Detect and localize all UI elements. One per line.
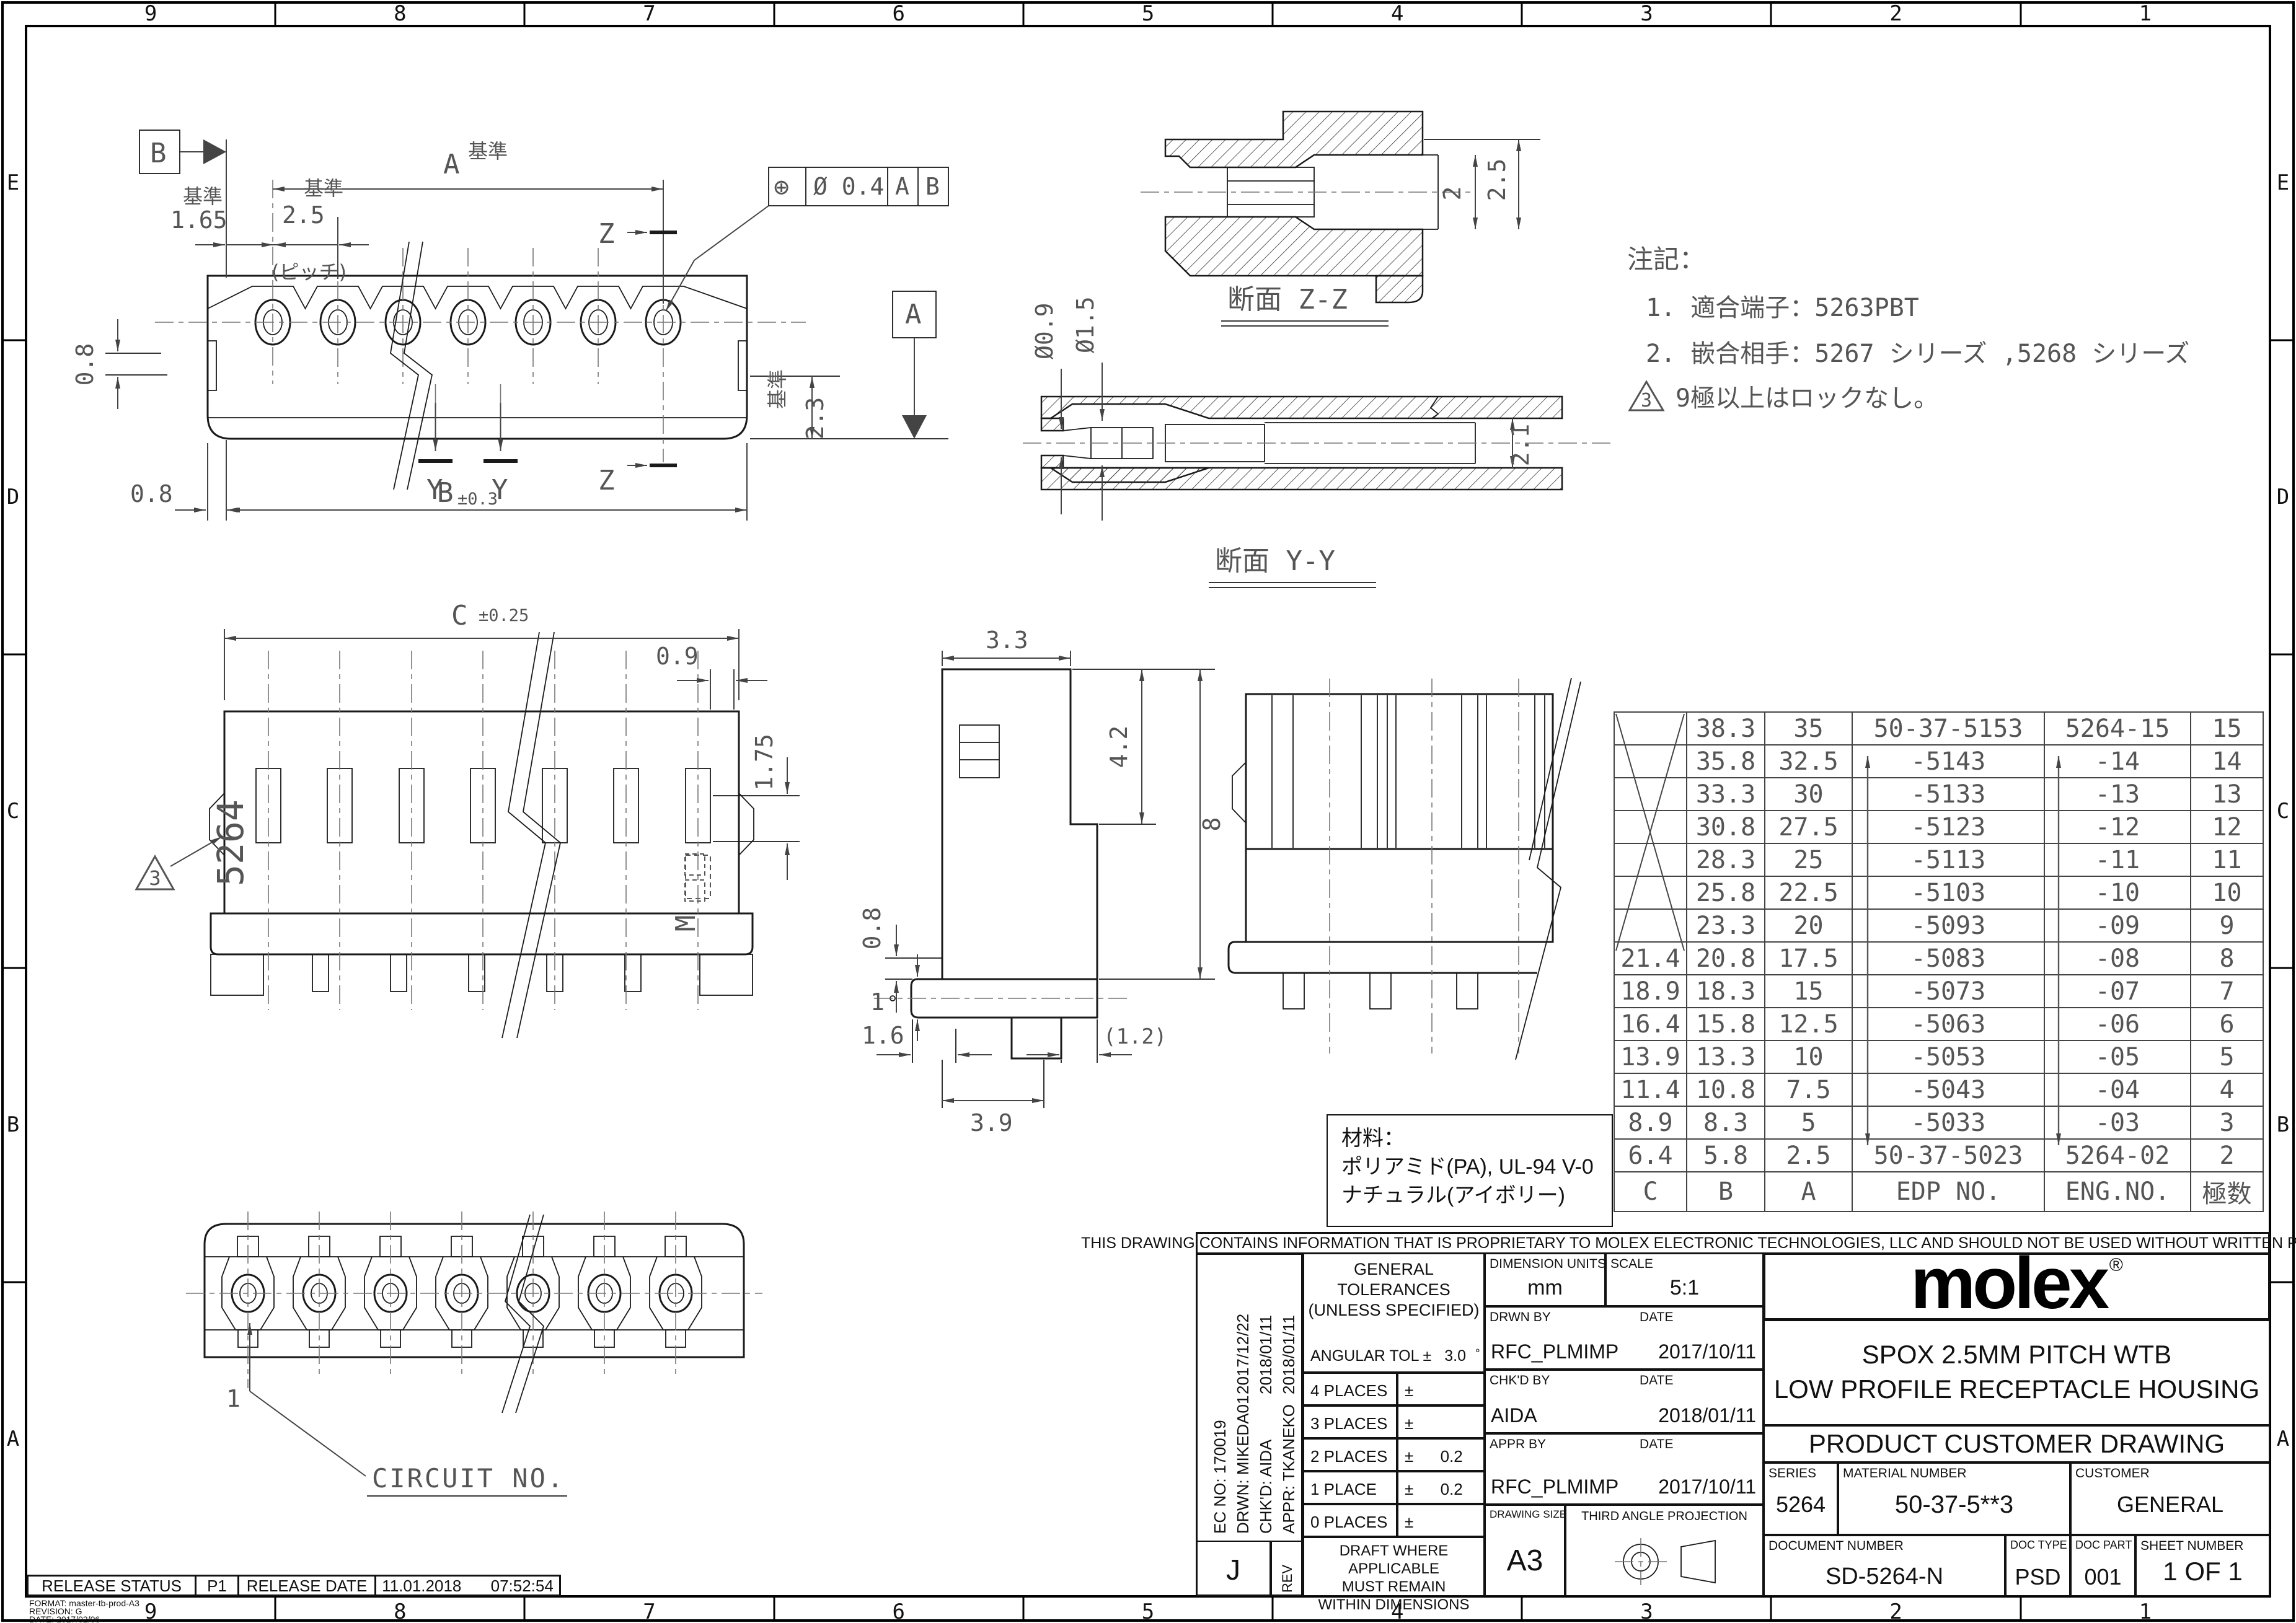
drawing-sheet: 998877665544332211EEDDCCBBAA bbox=[0, 0, 2296, 1623]
sheet-number-value: 1 OF 1 bbox=[2137, 1557, 2269, 1586]
title-cell: SPOX 2.5MM PITCH WTB LOW PROFILE RECEPTA… bbox=[1764, 1320, 2270, 1425]
drawing-title-line2: LOW PROFILE RECEPTACLE HOUSING bbox=[1765, 1372, 2269, 1407]
rev-value-cell: J bbox=[1196, 1541, 1271, 1596]
zone-row-A-left: A bbox=[0, 1282, 26, 1596]
parts-row-4-b: 10.8 bbox=[1687, 1073, 1765, 1106]
kijun-165: 基準 bbox=[183, 185, 223, 208]
chkd-by-label: CHK'D BY bbox=[1490, 1373, 1550, 1388]
rear-view bbox=[1203, 669, 1612, 1066]
projection-cell: THIRD ANGLE PROJECTION bbox=[1565, 1505, 1764, 1596]
drwn-by-label: DRWN BY bbox=[1490, 1310, 1551, 1325]
rev-label: REV bbox=[1279, 1547, 1296, 1593]
dim-c-tol: ±0.25 bbox=[479, 606, 529, 625]
dim-12: (1.2) bbox=[1103, 1024, 1167, 1049]
release-time-value: 07:52:54 bbox=[491, 1577, 554, 1595]
chkd-date: 2018/01/11 bbox=[1658, 1404, 1756, 1427]
parts-row-13-eng: -13 bbox=[2044, 778, 2191, 811]
document-number-cell: DOCUMENT NUMBER SD-5264-N bbox=[1764, 1535, 2005, 1596]
parts-row-7-poles: 7 bbox=[2191, 975, 2263, 1008]
zone-col-8-bottom: 8 bbox=[275, 1599, 524, 1623]
parts-row-11-poles: 11 bbox=[2191, 843, 2263, 876]
doc-type-label: DOC TYPE bbox=[2010, 1539, 2067, 1552]
parts-row-14-a: 32.5 bbox=[1765, 745, 1852, 778]
series-cell: SERIES 5264 bbox=[1764, 1462, 1838, 1535]
tol-row-1-label: 3 PLACES bbox=[1303, 1405, 1397, 1438]
dim-b-tol: ±0.3 bbox=[457, 490, 498, 509]
drwn-date: 2017/10/11 bbox=[1658, 1340, 1756, 1363]
date-line: DATE: 2017/02/06 bbox=[29, 1616, 139, 1623]
kijun-right: 基準 bbox=[766, 369, 789, 409]
parts-row-15-eng: 5264-15 bbox=[2044, 712, 2191, 745]
appr-date-label: DATE bbox=[1640, 1437, 1673, 1452]
parts-row-10-eng: -10 bbox=[2044, 876, 2191, 909]
zone-row-D-left: D bbox=[0, 340, 26, 654]
parts-row-10-poles: 10 bbox=[2191, 876, 2263, 909]
parts-row-15-b: 38.3 bbox=[1687, 712, 1765, 745]
parts-row-8-eng: -08 bbox=[2044, 942, 2191, 975]
parts-header-B: B bbox=[1687, 1172, 1765, 1212]
tol-row-4-value: ± bbox=[1397, 1504, 1485, 1537]
angular-tol-label: ANGULAR TOL ± bbox=[1310, 1347, 1431, 1365]
tolerances-header: GENERAL TOLERANCES (UNLESS SPECIFIED) AN… bbox=[1303, 1253, 1485, 1373]
zone-col-7-bottom: 7 bbox=[524, 1599, 774, 1623]
draft-line1: DRAFT WHERE APPLICABLE bbox=[1304, 1542, 1483, 1578]
parts-row-3-edp: -5033 bbox=[1852, 1106, 2044, 1139]
datum-a-flag: A bbox=[905, 299, 922, 330]
projection-label: THIRD ANGLE PROJECTION bbox=[1566, 1506, 1762, 1524]
yy-dim-hole: Ø0.9 bbox=[1031, 302, 1058, 359]
zz-dim-25: 2.5 bbox=[1483, 159, 1511, 201]
parts-row-7-c: 18.9 bbox=[1614, 975, 1687, 1008]
doc-band: PRODUCT CUSTOMER DRAWING bbox=[1764, 1425, 2270, 1462]
parts-row-2-a: 2.5 bbox=[1765, 1139, 1852, 1172]
dim-23: 2.3 bbox=[801, 397, 829, 440]
tol-row-2-label: 2 PLACES bbox=[1303, 1438, 1397, 1471]
units-cell: DIMENSION UNITS mm bbox=[1485, 1253, 1605, 1306]
scale-cell: SCALE 5:1 bbox=[1605, 1253, 1764, 1306]
parts-row-13-a: 30 bbox=[1765, 778, 1852, 811]
parts-header-ENG.NO.: ENG.NO. bbox=[2044, 1172, 2191, 1212]
parts-header-EDP NO.: EDP NO. bbox=[1852, 1172, 2044, 1212]
parts-row-9-b: 23.3 bbox=[1687, 909, 1765, 942]
circuit-no-label: CIRCUIT NO. bbox=[372, 1463, 565, 1493]
release-status-label: RELEASE STATUS bbox=[29, 1577, 196, 1594]
zone-col-7-top: 7 bbox=[524, 1, 774, 26]
document-number-value: SD-5264-N bbox=[1765, 1564, 2004, 1590]
molex-reg-mark: ® bbox=[2109, 1255, 2123, 1275]
parts-header-C: C bbox=[1614, 1172, 1687, 1212]
scale-label: SCALE bbox=[1610, 1257, 1653, 1272]
doc-part-value: 001 bbox=[2072, 1564, 2134, 1590]
tol-row-4-label: 0 PLACES bbox=[1303, 1504, 1397, 1537]
ec-appr: APPR: TKANEKO bbox=[1279, 1351, 1299, 1534]
series-value: 5264 bbox=[1765, 1492, 1837, 1518]
parts-row-6-poles: 6 bbox=[2191, 1008, 2263, 1040]
tol-title3: (UNLESS SPECIFIED) bbox=[1304, 1300, 1483, 1321]
parts-row-13-edp: -5133 bbox=[1852, 778, 2044, 811]
parts-row-14-edp: -5143 bbox=[1852, 745, 2044, 778]
parts-row-9-a: 20 bbox=[1765, 909, 1852, 942]
angular-tol-unit: ° bbox=[1475, 1347, 1480, 1360]
zone-col-8-top: 8 bbox=[275, 1, 524, 26]
appr-by-label: APPR BY bbox=[1490, 1437, 1546, 1452]
appr-by: RFC_PLMIMP bbox=[1491, 1476, 1618, 1498]
parts-row-3-a: 5 bbox=[1765, 1106, 1852, 1139]
parts-row-2-eng: 5264-02 bbox=[2044, 1139, 2191, 1172]
front-flag-3: 3 bbox=[149, 866, 161, 890]
ec-drwn: DRWN: MIKEDA01 bbox=[1234, 1351, 1253, 1534]
parts-row-5-edp: -5053 bbox=[1852, 1040, 2044, 1073]
doc-part-label: DOC PART bbox=[2075, 1539, 2132, 1552]
zone-col-1-bottom: 1 bbox=[2021, 1599, 2270, 1623]
parts-row-15-edp: 50-37-5153 bbox=[1852, 712, 2044, 745]
parts-row-12-edp: -5123 bbox=[1852, 811, 2044, 843]
svg-text:3: 3 bbox=[1641, 390, 1652, 411]
dim-step-lower: 0.8 bbox=[130, 480, 173, 508]
dim-42: 4.2 bbox=[1105, 726, 1133, 768]
parts-row-10-b: 25.8 bbox=[1687, 876, 1765, 909]
tol-title1: GENERAL bbox=[1304, 1259, 1483, 1280]
dim-pitch: 2.5 bbox=[282, 201, 325, 229]
dim-08: 0.8 bbox=[859, 907, 886, 950]
side-view: 3.3 4.2 8 0.8 1 1.6 (1.2) 3.9 bbox=[855, 632, 1252, 1146]
parts-row-12-poles: 12 bbox=[2191, 811, 2263, 843]
parts-row-2-poles: 2 bbox=[2191, 1139, 2263, 1172]
fcf-position-symbol: ⊕ bbox=[774, 172, 789, 202]
drawing-title-line1: SPOX 2.5MM PITCH WTB bbox=[1765, 1337, 2269, 1372]
zone-col-2-top: 2 bbox=[1772, 1, 2021, 26]
parts-row-3-poles: 3 bbox=[2191, 1106, 2263, 1139]
parts-row-6-edp: -5063 bbox=[1852, 1008, 2044, 1040]
rev-label-cell: REV bbox=[1271, 1541, 1303, 1596]
ec-no: EC NO: 170019 bbox=[1211, 1351, 1230, 1534]
appr-date: 2017/10/11 bbox=[1658, 1476, 1756, 1498]
datum-a-triangle bbox=[902, 415, 927, 439]
draft-line2: MUST REMAIN bbox=[1304, 1578, 1483, 1596]
parts-row-6-c: 16.4 bbox=[1614, 1008, 1687, 1040]
drwn-by: RFC_PLMIMP bbox=[1491, 1340, 1618, 1363]
parts-row-10-c bbox=[1614, 876, 1687, 909]
front-view: 5264 M C ±0.25 0.9 1.75 3 bbox=[112, 576, 886, 1072]
fcf-datum1: A bbox=[895, 173, 909, 200]
parts-row-3-c: 8.9 bbox=[1614, 1106, 1687, 1139]
zone-row-D-right: D bbox=[2270, 340, 2296, 654]
dim-a-kijun: 基準 bbox=[468, 139, 508, 163]
section-yy: Ø0.9 Ø1.5 2.1 断面 Y-Y bbox=[1004, 335, 1649, 607]
parts-row-8-b: 20.8 bbox=[1687, 942, 1765, 975]
parts-row-9-eng: -09 bbox=[2044, 909, 2191, 942]
tol-row-0-value: ± bbox=[1397, 1373, 1485, 1405]
parts-header-A: A bbox=[1765, 1172, 1852, 1212]
release-strip: RELEASE STATUS P1 RELEASE DATE 11.01.201… bbox=[27, 1575, 561, 1596]
series-label: SERIES bbox=[1768, 1466, 1816, 1481]
parts-row-14-poles: 14 bbox=[2191, 745, 2263, 778]
tol-row-3-label: 1 PLACE bbox=[1303, 1471, 1397, 1504]
chkd-cell: CHK'D BY DATE AIDA 2018/01/11 bbox=[1485, 1370, 1764, 1433]
ec-chkd: CHK'D: AIDA bbox=[1256, 1351, 1276, 1534]
dim-165: 1.65 bbox=[170, 206, 227, 234]
tol-row-2-value: ± 0.2 bbox=[1397, 1438, 1485, 1471]
dim-16: 1.6 bbox=[862, 1022, 904, 1049]
dim-c: C bbox=[451, 600, 468, 631]
parts-row-5-a: 10 bbox=[1765, 1040, 1852, 1073]
sheet-number-cell: SHEET NUMBER 1 OF 1 bbox=[2135, 1535, 2270, 1596]
drwn-cell: DRWN BY DATE RFC_PLMIMP 2017/10/11 bbox=[1485, 1306, 1764, 1370]
chkd-date-label: DATE bbox=[1640, 1373, 1673, 1388]
bottom-view: 1 CIRCUIT NO. bbox=[167, 1208, 787, 1543]
parts-row-6-b: 15.8 bbox=[1687, 1008, 1765, 1040]
doc-type-value: PSD bbox=[2007, 1564, 2069, 1590]
zone-row-E-right: E bbox=[2270, 26, 2296, 340]
dim-step-upper: 0.8 bbox=[71, 343, 99, 386]
notes-block: 注記： 1. 適合端子：5263PBT 2. 嵌合相手：5267 シリーズ ,5… bbox=[1627, 239, 2189, 414]
pin1-label: 1 bbox=[226, 1385, 241, 1412]
pitch-note: (ピッチ) bbox=[272, 260, 347, 284]
units-value: mm bbox=[1486, 1276, 1604, 1300]
drwn-date-label: DATE bbox=[1640, 1310, 1673, 1325]
parts-row-2-b: 5.8 bbox=[1687, 1139, 1765, 1172]
zz-dim-2: 2 bbox=[1439, 187, 1466, 201]
parts-row-7-a: 15 bbox=[1765, 975, 1852, 1008]
release-date-value: 11.01.2018 bbox=[382, 1577, 461, 1595]
draft-line3: WITHIN DIMENSIONS bbox=[1304, 1596, 1483, 1614]
section-z-bottom: Z bbox=[598, 465, 615, 496]
parts-row-15-a: 35 bbox=[1765, 712, 1852, 745]
parts-row-8-a: 17.5 bbox=[1765, 942, 1852, 975]
zone-col-6-top: 6 bbox=[774, 1, 1023, 26]
parts-row-7-b: 18.3 bbox=[1687, 975, 1765, 1008]
date-marking: M bbox=[670, 915, 702, 932]
parts-row-7-eng: -07 bbox=[2044, 975, 2191, 1008]
rev-value: J bbox=[1197, 1542, 1269, 1586]
parts-row-12-c bbox=[1614, 811, 1687, 843]
parts-row-12-eng: -12 bbox=[2044, 811, 2191, 843]
zone-col-4-top: 4 bbox=[1273, 1, 1522, 26]
parts-row-2-edp: 50-37-5023 bbox=[1852, 1139, 2044, 1172]
material-line2: ナチュラル(アイボリー) bbox=[1341, 1181, 1612, 1210]
note-2: 2. 嵌合相手：5267 シリーズ ,5268 シリーズ bbox=[1646, 333, 2189, 369]
parts-row-11-edp: -5113 bbox=[1852, 843, 2044, 876]
dim-a: A bbox=[443, 149, 460, 180]
material-box: 材料： ポリアミド(PA), UL-94 V-0 ナチュラル(アイボリー) bbox=[1327, 1114, 1613, 1227]
draft-note: DRAFT WHERE APPLICABLE MUST REMAIN WITHI… bbox=[1303, 1537, 1485, 1596]
drawing-size-label: DRAWING SIZE bbox=[1490, 1508, 1566, 1521]
parts-row-10-edp: -5103 bbox=[1852, 876, 2044, 909]
zone-col-2-bottom: 2 bbox=[1772, 1599, 2021, 1623]
note-1: 1. 適合端子：5263PBT bbox=[1646, 288, 2189, 323]
datum-b-triangle bbox=[203, 139, 226, 164]
parts-row-13-c bbox=[1614, 778, 1687, 811]
material-title: 材料： bbox=[1341, 1124, 1612, 1153]
doc-part-cell: DOC PART 001 bbox=[2070, 1535, 2135, 1596]
dim-33: 3.3 bbox=[986, 627, 1028, 654]
dim-1: 1 bbox=[870, 988, 885, 1016]
parts-row-3-b: 8.3 bbox=[1687, 1106, 1765, 1139]
parts-header-極数: 極数 bbox=[2191, 1172, 2263, 1212]
yy-dim-bore: Ø1.5 bbox=[1072, 296, 1099, 353]
parts-row-15-poles: 15 bbox=[2191, 712, 2263, 745]
doc-type-cell: DOC TYPE PSD bbox=[2005, 1535, 2070, 1596]
parts-row-8-edp: -5083 bbox=[1852, 942, 2044, 975]
parts-row-5-b: 13.3 bbox=[1687, 1040, 1765, 1073]
section-z-top: Z bbox=[598, 218, 615, 250]
zz-title: 断面 Z-Z bbox=[1227, 284, 1348, 315]
third-angle-projection-icon bbox=[1610, 1536, 1728, 1588]
molded-text: 5264 bbox=[210, 799, 252, 886]
parts-row-4-a: 7.5 bbox=[1765, 1073, 1852, 1106]
parts-row-13-b: 33.3 bbox=[1687, 778, 1765, 811]
parts-row-4-eng: -04 bbox=[2044, 1073, 2191, 1106]
angular-tol-value: 3.0 bbox=[1444, 1347, 1466, 1365]
parts-row-9-c bbox=[1614, 909, 1687, 942]
document-number-label: DOCUMENT NUMBER bbox=[1768, 1539, 1904, 1554]
parts-row-5-eng: -05 bbox=[2044, 1040, 2191, 1073]
logo-cell: molex ® bbox=[1764, 1253, 2270, 1320]
parts-row-2-c: 6.4 bbox=[1614, 1139, 1687, 1172]
zone-col-6-bottom: 6 bbox=[774, 1599, 1023, 1623]
format-note: FORMAT: master-tb-prod-A3 REVISION: G DA… bbox=[29, 1599, 139, 1623]
note-3-text: 9極以上はロックなし。 bbox=[1676, 378, 1938, 414]
yy-dim-height: 2.1 bbox=[1507, 424, 1534, 467]
parts-table: 38.33550-37-51535264-151535.832.5-5143-1… bbox=[1614, 711, 2264, 1212]
yy-title: 断面 Y-Y bbox=[1215, 545, 1335, 577]
parts-row-8-poles: 8 bbox=[2191, 942, 2263, 975]
parts-row-8-c: 21.4 bbox=[1614, 942, 1687, 975]
customer-cell: CUSTOMER GENERAL bbox=[2070, 1462, 2270, 1535]
dim-09: 0.9 bbox=[656, 643, 699, 670]
zone-col-3-top: 3 bbox=[1522, 1, 1771, 26]
scale-value: 5:1 bbox=[1607, 1276, 1762, 1300]
parts-row-12-a: 27.5 bbox=[1765, 811, 1852, 843]
drawing-size-value: A3 bbox=[1486, 1544, 1564, 1578]
chkd-by: AIDA bbox=[1491, 1404, 1537, 1427]
parts-row-11-c bbox=[1614, 843, 1687, 876]
zone-row-C-right: C bbox=[2270, 654, 2296, 969]
sheet-number-label: SHEET NUMBER bbox=[2140, 1539, 2243, 1554]
parts-row-15-c bbox=[1614, 712, 1687, 745]
parts-row-4-c: 11.4 bbox=[1614, 1073, 1687, 1106]
dim-175: 1.75 bbox=[751, 734, 778, 791]
tol-row-1-value: ± bbox=[1397, 1405, 1485, 1438]
fcf-tolerance: Ø 0.4 bbox=[813, 173, 884, 200]
zone-col-3-bottom: 3 bbox=[1522, 1599, 1771, 1623]
dim-39: 3.9 bbox=[970, 1109, 1013, 1137]
zone-col-5-bottom: 5 bbox=[1023, 1599, 1273, 1623]
parts-row-11-a: 25 bbox=[1765, 843, 1852, 876]
tol-row-3-value: ± 0.2 bbox=[1397, 1471, 1485, 1504]
customer-label: CUSTOMER bbox=[2075, 1466, 2150, 1481]
customer-value: GENERAL bbox=[2072, 1492, 2269, 1518]
parts-row-13-poles: 13 bbox=[2191, 778, 2263, 811]
parts-row-6-eng: -06 bbox=[2044, 1008, 2191, 1040]
parts-row-14-eng: -14 bbox=[2044, 745, 2191, 778]
parts-row-5-c: 13.9 bbox=[1614, 1040, 1687, 1073]
kijun-25: 基準 bbox=[304, 177, 343, 200]
tol-row-0-label: 4 PLACES bbox=[1303, 1373, 1397, 1405]
note-3: 3 9極以上はロックなし。 bbox=[1627, 378, 2189, 414]
parts-row-7-edp: -5073 bbox=[1852, 975, 2044, 1008]
material-number-value: 50-37-5**3 bbox=[1839, 1491, 2069, 1519]
zone-col-5-top: 5 bbox=[1023, 1, 1273, 26]
drawing-size-cell: DRAWING SIZE A3 bbox=[1485, 1505, 1565, 1596]
parts-row-5-poles: 5 bbox=[2191, 1040, 2263, 1073]
parts-row-4-edp: -5043 bbox=[1852, 1073, 2044, 1106]
parts-row-11-eng: -11 bbox=[2044, 843, 2191, 876]
material-number-label: MATERIAL NUMBER bbox=[1843, 1466, 1967, 1481]
parts-row-6-a: 12.5 bbox=[1765, 1008, 1852, 1040]
molex-logo: molex bbox=[1910, 1243, 2106, 1324]
parts-row-11-b: 28.3 bbox=[1687, 843, 1765, 876]
parts-row-14-c bbox=[1614, 745, 1687, 778]
parts-row-9-edp: -5093 bbox=[1852, 909, 2044, 942]
notes-title: 注記： bbox=[1627, 239, 2189, 276]
zone-row-A-right: A bbox=[2270, 1282, 2296, 1596]
appr-cell: APPR BY DATE RFC_PLMIMP 2017/10/11 bbox=[1485, 1433, 1764, 1505]
zone-col-9-top: 9 bbox=[26, 1, 275, 26]
fcf-datum2: B bbox=[925, 173, 940, 200]
doc-band-text: PRODUCT CUSTOMER DRAWING bbox=[1765, 1427, 2269, 1459]
note-3-flag-triangle: 3 bbox=[1627, 379, 1666, 413]
release-date-label: RELEASE DATE bbox=[239, 1577, 376, 1594]
datum-b-flag: B bbox=[150, 138, 167, 169]
zone-row-E-left: E bbox=[0, 26, 26, 340]
parts-row-9-poles: 9 bbox=[2191, 909, 2263, 942]
zone-row-C-left: C bbox=[0, 654, 26, 969]
parts-row-10-a: 22.5 bbox=[1765, 876, 1852, 909]
parts-row-14-b: 35.8 bbox=[1687, 745, 1765, 778]
zone-row-B-left: B bbox=[0, 968, 26, 1282]
units-label: DIMENSION UNITS bbox=[1490, 1257, 1606, 1272]
dim-b: B bbox=[437, 477, 454, 509]
zone-col-1-top: 1 bbox=[2021, 1, 2270, 26]
material-line1: ポリアミド(PA), UL-94 V-0 bbox=[1341, 1153, 1612, 1181]
tol-title2: TOLERANCES bbox=[1304, 1280, 1483, 1300]
parts-row-4-poles: 4 bbox=[2191, 1073, 2263, 1106]
parts-row-12-b: 30.8 bbox=[1687, 811, 1765, 843]
release-status-value: P1 bbox=[196, 1577, 239, 1594]
parts-row-3-eng: -03 bbox=[2044, 1106, 2191, 1139]
material-number-cell: MATERIAL NUMBER 50-37-5**3 bbox=[1838, 1462, 2070, 1535]
